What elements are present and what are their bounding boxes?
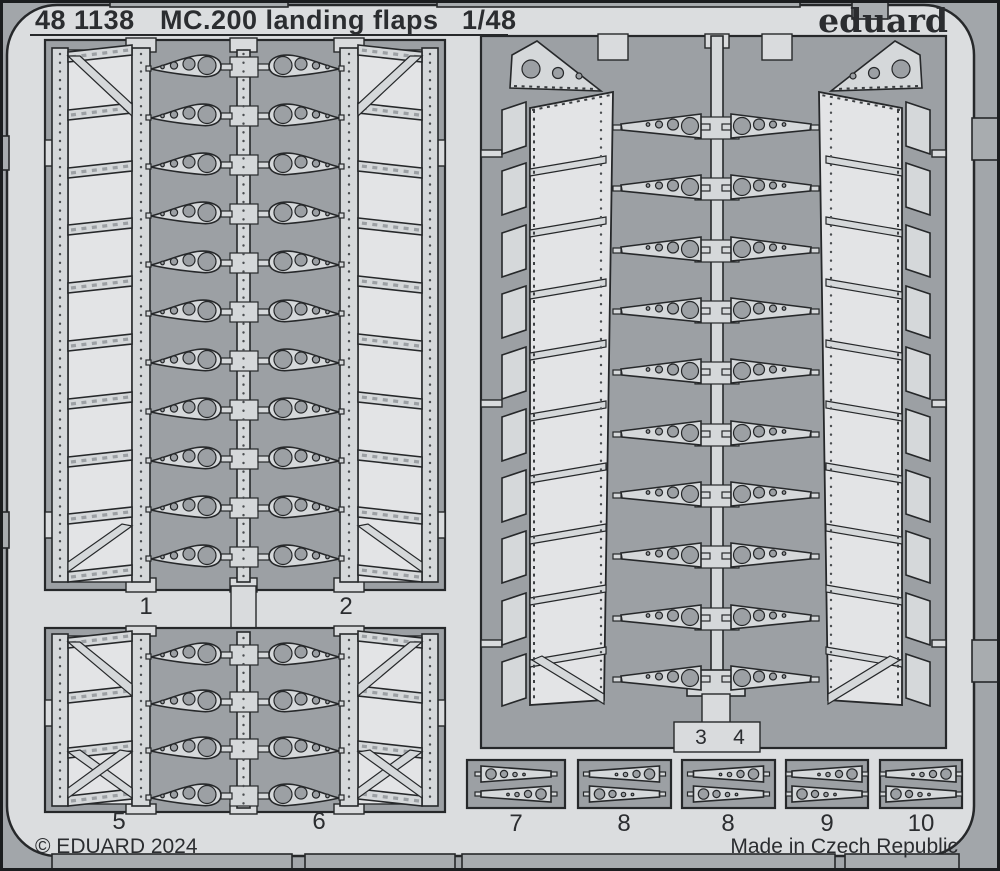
catalog-number: 48 1138 bbox=[35, 5, 135, 35]
part-label-8b: 8 bbox=[721, 810, 734, 837]
block-parts-3-4 bbox=[481, 34, 946, 752]
page-title: MC.200 landing flaps bbox=[160, 5, 439, 35]
part-label-3: 3 bbox=[695, 726, 707, 749]
part-label-2: 2 bbox=[339, 593, 352, 620]
part-label-6: 6 bbox=[312, 808, 325, 835]
part-label-9: 9 bbox=[820, 810, 833, 837]
part-label-4: 4 bbox=[733, 726, 745, 749]
part-5-ladder-frame bbox=[52, 631, 150, 806]
label-plate-3-4 bbox=[674, 722, 760, 752]
part-1-ladder-frame bbox=[52, 45, 150, 582]
part-label-5: 5 bbox=[112, 808, 125, 835]
part-3-flap-panel bbox=[502, 41, 613, 706]
part-label-8a: 8 bbox=[617, 810, 630, 837]
part-label-7: 7 bbox=[509, 810, 522, 837]
part-label-10: 10 bbox=[908, 810, 935, 837]
brand-logo: eduard bbox=[818, 1, 948, 40]
small-parts-row bbox=[467, 760, 962, 808]
block-parts-5-6 bbox=[45, 626, 445, 814]
part-6-ladder-frame bbox=[340, 631, 438, 806]
made-in-text: Made in Czech Republic bbox=[730, 835, 958, 858]
part-4-flap-panel bbox=[819, 41, 930, 706]
spine-neck bbox=[231, 586, 256, 632]
scale-label: 1/48 bbox=[462, 5, 517, 35]
pe-fret-sheet-photo: 48 1138 MC.200 landing flaps 1/48 eduard… bbox=[0, 0, 1000, 871]
part-2-ladder-frame bbox=[340, 45, 438, 582]
block-parts-1-2 bbox=[45, 38, 445, 592]
fret-drawing: 48 1138 MC.200 landing flaps 1/48 eduard… bbox=[0, 0, 1000, 871]
part-label-1: 1 bbox=[139, 593, 152, 620]
copyright-text: © EDUARD 2024 bbox=[35, 835, 198, 858]
